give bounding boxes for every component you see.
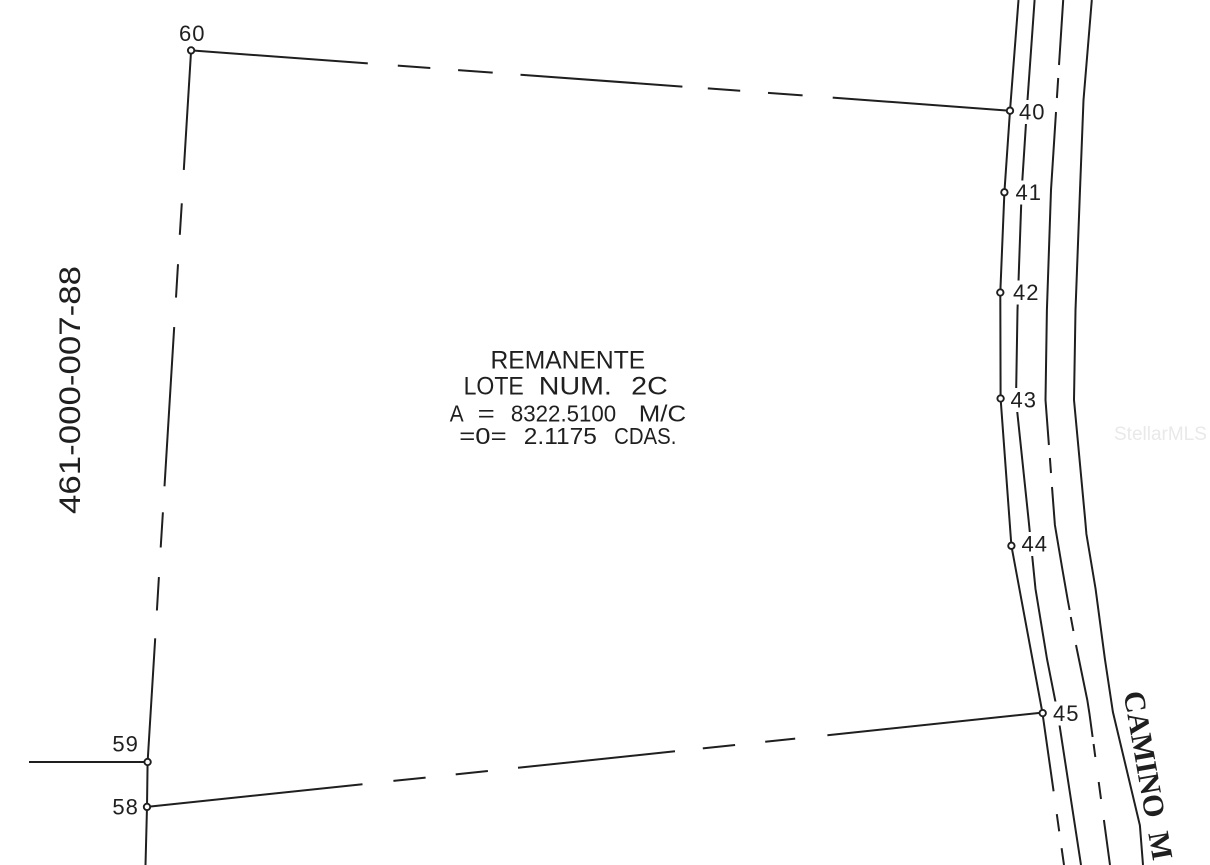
svg-text:44: 44 xyxy=(1022,532,1048,557)
svg-text:60: 60 xyxy=(179,21,205,46)
svg-text:41: 41 xyxy=(1016,180,1042,205)
svg-text:45: 45 xyxy=(1053,701,1079,726)
svg-text:43: 43 xyxy=(1011,388,1037,413)
svg-text:40: 40 xyxy=(1019,100,1045,125)
svg-text:CAMINO M: CAMINO M xyxy=(1117,688,1179,862)
svg-text:REMANENTE: REMANENTE xyxy=(491,347,646,375)
svg-text:StellarMLS: StellarMLS xyxy=(1114,424,1207,445)
svg-text:461-000-007-88: 461-000-007-88 xyxy=(54,266,87,514)
svg-text:=0=2.1175CDAS.: =0=2.1175CDAS. xyxy=(459,423,676,449)
svg-text:59: 59 xyxy=(112,732,138,757)
svg-text:42: 42 xyxy=(1013,280,1039,305)
svg-text:LOTENUM.2C: LOTENUM.2C xyxy=(464,373,668,401)
svg-text:58: 58 xyxy=(112,795,138,820)
